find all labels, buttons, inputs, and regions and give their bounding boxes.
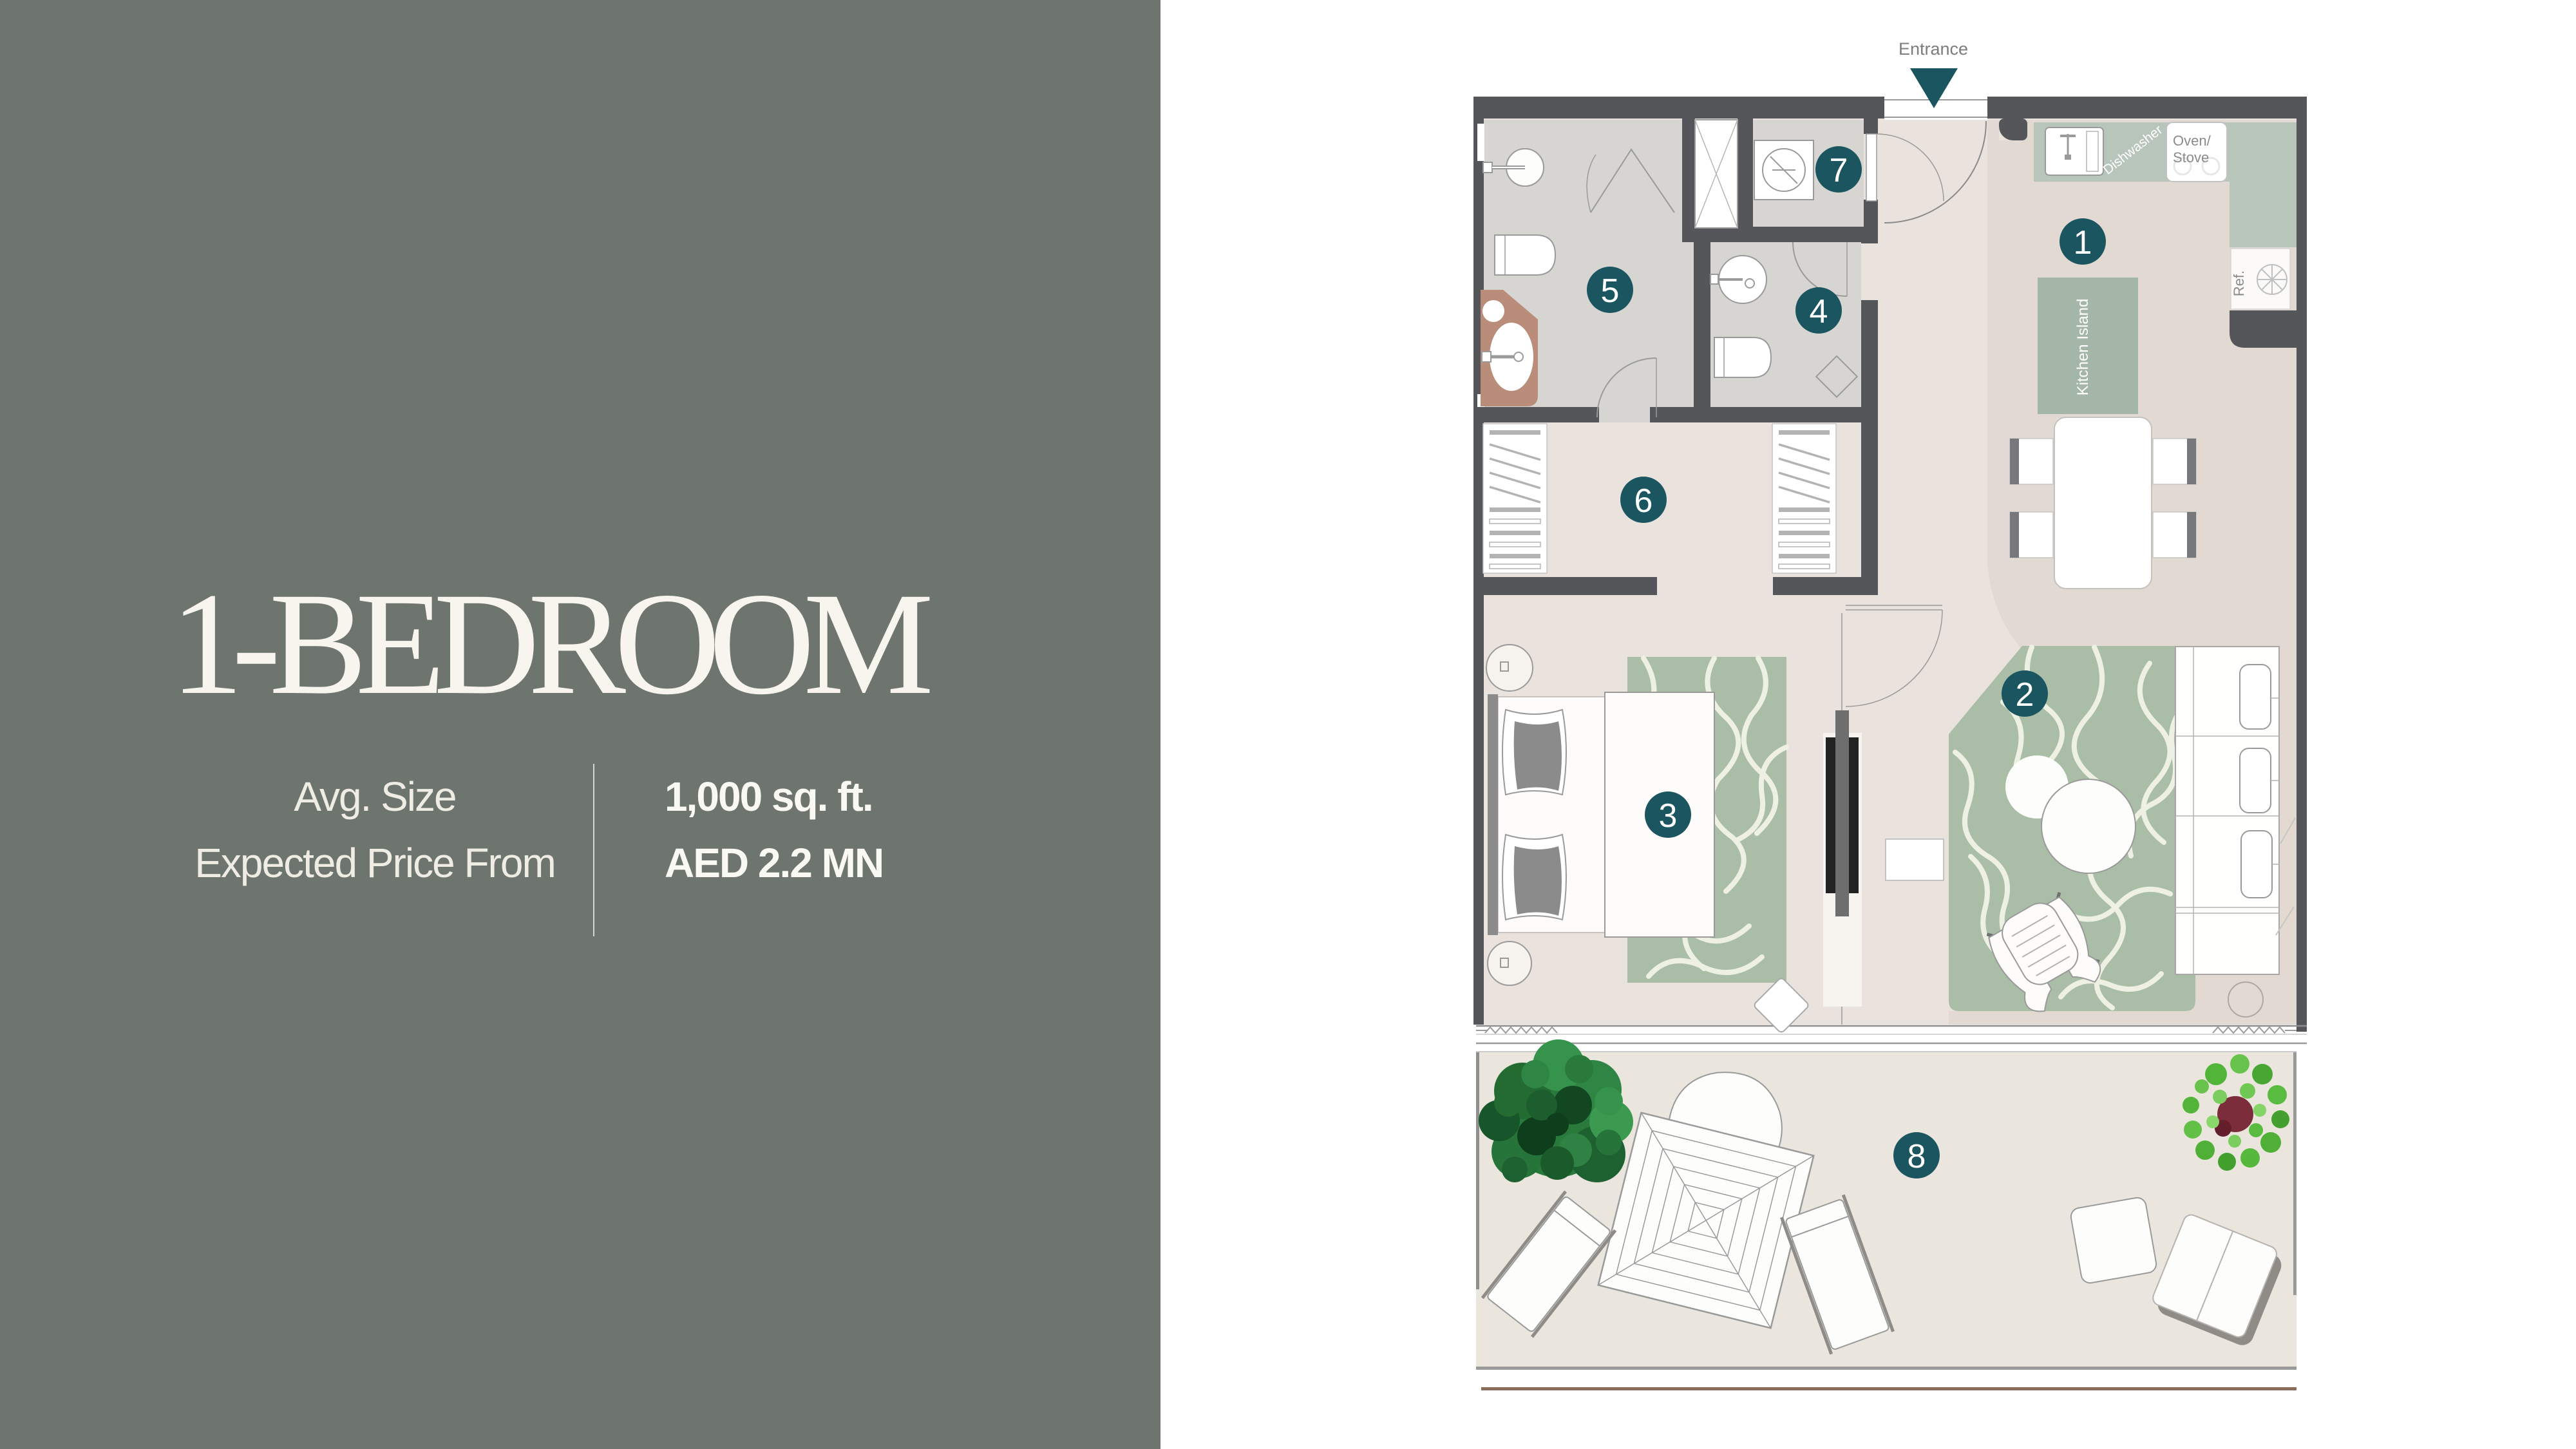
svg-text:2: 2: [2016, 676, 2034, 714]
svg-text:Kitchen Island: Kitchen Island: [2074, 299, 2092, 396]
svg-text:Entrance: Entrance: [1899, 39, 1968, 59]
svg-text:8: 8: [1908, 1138, 1926, 1175]
svg-text:Oven/: Oven/: [2173, 133, 2211, 149]
svg-text:Ref.: Ref.: [2231, 270, 2247, 296]
svg-text:1: 1: [2074, 224, 2092, 261]
svg-text:Stove: Stove: [2173, 149, 2209, 166]
svg-text:6: 6: [1634, 482, 1653, 520]
svg-text:4: 4: [1810, 293, 1828, 330]
svg-text:7: 7: [1830, 152, 1848, 189]
svg-text:5: 5: [1601, 272, 1620, 310]
svg-text:3: 3: [1659, 797, 1678, 835]
